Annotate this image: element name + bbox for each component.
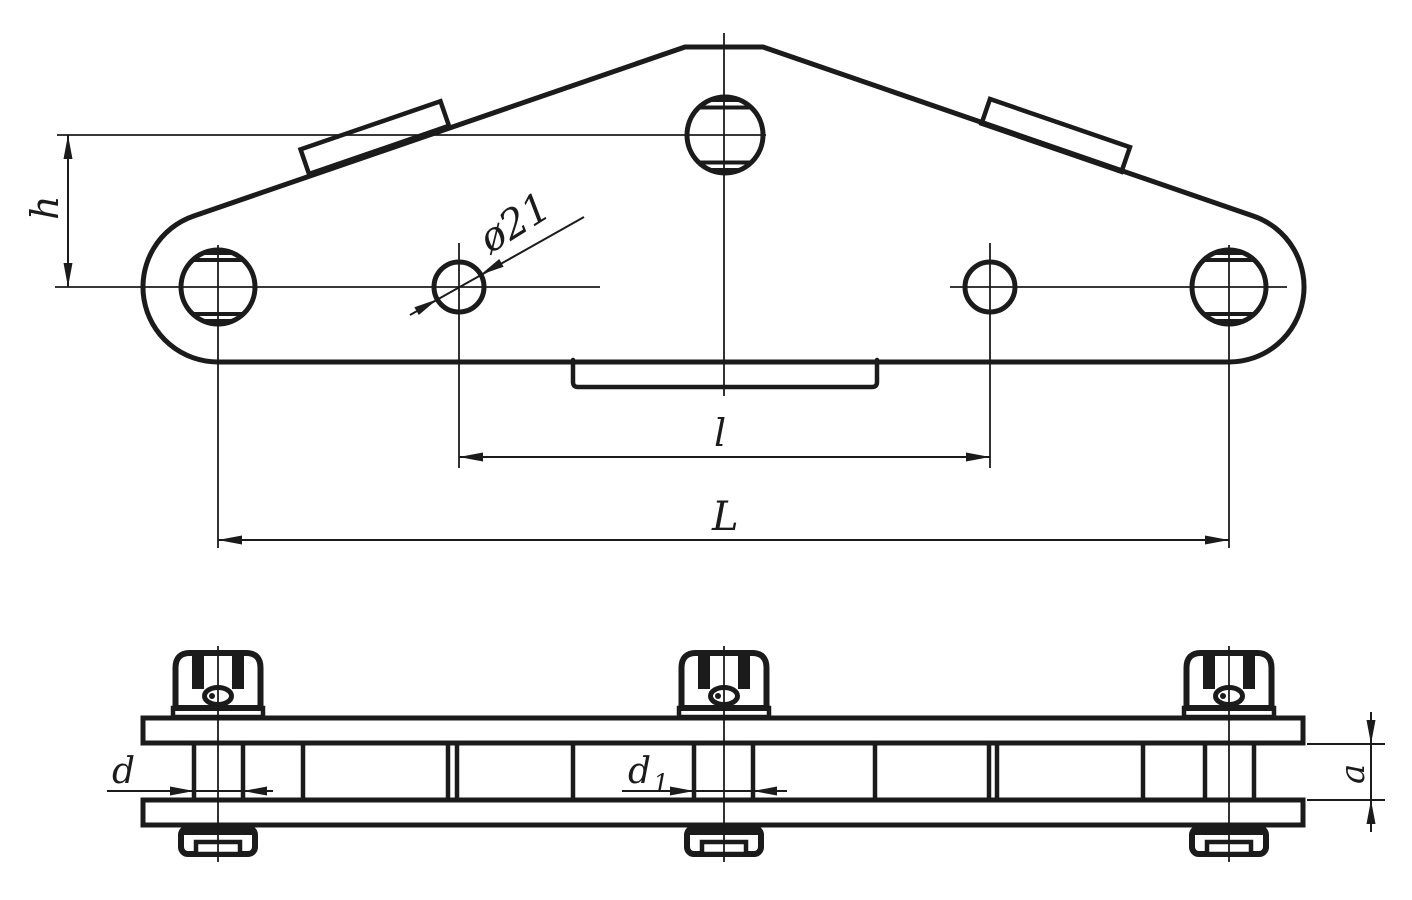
arrowhead [243, 787, 267, 796]
dimension-d1: d1 [622, 751, 787, 798]
drawing-sheet: h ø21 l L [0, 0, 1412, 900]
arrowhead [64, 263, 73, 287]
arrowhead [1367, 720, 1376, 744]
arrowhead [670, 787, 694, 796]
dimension-L: L [218, 494, 1229, 545]
dimension-h: h [23, 135, 73, 287]
side-view: d d1 a [107, 646, 1385, 862]
arrowhead [218, 536, 242, 545]
arrowhead [414, 299, 437, 315]
bolt-assembly-left [173, 646, 263, 862]
dimension-a: a [1307, 712, 1385, 832]
arrowhead [64, 135, 73, 159]
top-plate [143, 718, 1303, 743]
dim-label-dia21: ø21 [470, 184, 559, 263]
dim-label-d1: d1 [628, 751, 669, 798]
dim-label-l: l [714, 411, 726, 455]
dimension-d: d [107, 751, 273, 796]
arrowhead [1367, 800, 1376, 824]
arrowhead [966, 453, 990, 462]
arrowhead [481, 259, 504, 275]
dim-label-h: h [23, 196, 67, 220]
dim-label-a: a [1333, 764, 1373, 784]
dim-label-d: d [112, 751, 135, 792]
arrowhead [753, 787, 777, 796]
dimension-l: l [459, 411, 990, 462]
arrowhead [459, 453, 483, 462]
arrowhead [1205, 536, 1229, 545]
arrowhead [170, 787, 194, 796]
dim-label-d1-base: d [628, 751, 651, 792]
dim-label-d1-subscript: 1 [653, 769, 669, 798]
bottom-plate [143, 800, 1303, 825]
dim-label-L: L [711, 494, 739, 540]
technical-drawing-canvas: h ø21 l L [0, 0, 1412, 900]
bolt-assembly-right [1184, 646, 1274, 862]
slope-tab-right [982, 99, 1130, 172]
top-view: h ø21 l L [23, 33, 1304, 548]
